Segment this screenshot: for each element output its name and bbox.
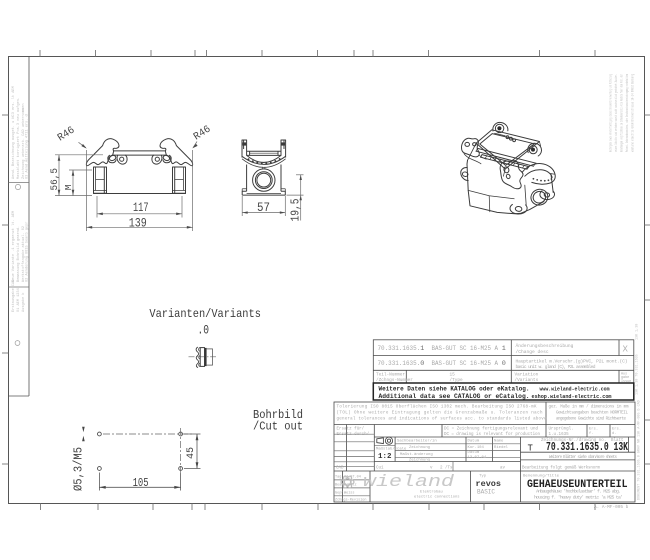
svg-text:Erstausgabe CAD: Erstausgabe CAD	[11, 280, 16, 312]
svg-text:basic unit w. gland (C), P2L a: basic unit w. gland (C), P2L assembled	[516, 364, 596, 370]
svg-text:Typ: Typ	[479, 474, 487, 478]
svg-text:Name: Name	[494, 439, 504, 443]
svg-text:13K 1,30 70.331.1635: 13K 1,30 70.331.1635	[636, 354, 640, 395]
svg-text:Issue: Issue	[621, 380, 631, 384]
svg-text:Weitergabe sowie Vervielfaelti: Weitergabe sowie Vervielfaeltigung diese…	[609, 74, 614, 152]
svg-text:gez. Maße in mm / dimensions i: gez. Maße in mm / dimensions in mm	[549, 405, 629, 410]
svg-text:Ersatz für/: Ersatz für/	[337, 427, 365, 432]
svg-text:.0: .0	[198, 324, 210, 338]
svg-text:/Cut out: /Cut out	[253, 420, 303, 434]
svg-text:Datum: Datum	[468, 439, 480, 443]
svg-text:139: 139	[129, 217, 147, 231]
svg-text:Tolerierung ISO 8015 Oberfläc: Tolerierung ISO 8015 Oberflächen ISO 130…	[337, 405, 537, 410]
svg-text:Massblatt korrigiert Pos.3 n: Massblatt korrigiert Pos.3 neu aufgen.	[16, 97, 21, 179]
svg-text:13K 1,30: 13K 1,30	[636, 324, 640, 340]
svg-text:45: 45	[185, 447, 197, 459]
svg-text:R46: R46	[56, 124, 78, 144]
svg-text:Gewichtsangaben beachten NORMT: Gewichtsangaben beachten NORMTEIL	[556, 411, 628, 416]
svg-text:Hauptartikel m.Verschr.(g)PVC,: Hauptartikel m.Verschr.(g)PVC, P2L mont.…	[516, 359, 628, 365]
svg-text:15: 15	[450, 373, 456, 378]
svg-text:CAD: CAD	[336, 467, 344, 471]
svg-text:Anbaugehäuse 'hochbelastbar' f: Anbaugehäuse 'hochbelastbar' f. M25 abg.	[536, 489, 621, 495]
svg-text:19,5: 19,5	[290, 198, 303, 221]
svg-text:Neue Variante .1 ergaenzt lt: Neue Variante .1 ergaenzt lt. AEM	[11, 211, 16, 282]
svg-text:Teil-Nummer: Teil-Nummer	[376, 373, 405, 378]
svg-text:DOKUMENT 70.331.1635.0 GRAV N: DOKUMENT 70.331.1635.0 GRAV NR 13K A-MF-…	[637, 400, 642, 500]
svg-text:d.: d.	[612, 431, 617, 436]
svg-text:2 /Ts: 2 /Ts	[440, 465, 453, 470]
svg-text:Weiss: Weiss	[344, 491, 355, 496]
svg-text:M: M	[63, 184, 74, 190]
svg-text:Weitere Daten siehe KATALOG od: Weitere Daten siehe KATALOG oder eKatalo…	[379, 386, 530, 393]
svg-text:1: 1	[502, 345, 506, 353]
svg-text:Varianten/Variants: Varianten/Variants	[149, 307, 261, 321]
svg-text:angegebene Gewichte sind Richt: angegebene Gewichte sind Richtwerte	[556, 417, 626, 422]
svg-text:Sachbearbeiter/in: Sachbearbeiter/in	[397, 438, 437, 443]
svg-text:Zeichnung: Zeichnung	[409, 457, 430, 462]
svg-text:Patent- Gebrauchsmusters- oder: Patent- Gebrauchsmusters- oder Geschmack…	[625, 74, 630, 152]
svg-text:70.331.1635.0 13K: 70.331.1635.0 13K	[546, 441, 628, 454]
svg-text:housing f. 'heavy duty' metric: housing f. 'heavy duty' metric 'a M25 ta…	[534, 494, 623, 500]
svg-text:70.331.1635.: 70.331.1635.	[378, 345, 421, 353]
svg-text:Änderungsbeschreibung: Änderungsbeschreibung	[516, 342, 574, 349]
svg-text:Tag: Tag	[335, 476, 341, 480]
svg-text:/Change desc: /Change desc	[516, 349, 549, 355]
svg-text:v: v	[430, 466, 433, 470]
svg-text:general tolerances and indicat: general tolerances and indications of su…	[337, 417, 547, 422]
svg-text:0: 0	[502, 360, 506, 368]
svg-text:seines Inhalts sind verboten s: seines Inhalts sind verboten soweit nich…	[614, 74, 619, 152]
svg-text:Elektrobau: Elektrobau	[420, 490, 443, 495]
svg-text:T: T	[528, 444, 534, 454]
svg-text:Additional data see CATALOG or: Additional data see CATALOG or eCatalog.	[379, 393, 530, 400]
svg-text:Benennung/Title: Benennung/Title	[523, 473, 560, 478]
svg-text:eshop.wieland-electric.com: eshop.wieland-electric.com	[532, 393, 613, 400]
svg-text:57: 57	[257, 201, 270, 215]
svg-text:70.331.1635.: 70.331.1635.	[378, 360, 421, 368]
svg-text:Ers.: Ers.	[589, 427, 598, 432]
svg-text:BAS-GUT SC 16-M25 A: BAS-GUT SC 16-M25 A	[425, 360, 502, 368]
svg-text:13.07.04: 13.07.04	[468, 456, 487, 460]
svg-text:DC = drawing is relevant for p: DC = drawing is relevant for production	[444, 432, 540, 437]
svg-text:f.: f.	[589, 431, 594, 436]
svg-text:/Type: /Type	[450, 378, 464, 383]
svg-text:R46: R46	[192, 123, 214, 143]
svg-text:/Variants: /Variants	[515, 378, 539, 383]
svg-text:01 AEM 1234: 01 AEM 1234	[17, 288, 21, 312]
svg-text:A. A-MF-005 b: A. A-MF-005 b	[594, 505, 629, 510]
svg-text:Aend. Bezeichnung ausget. u: Aend. Bezeichnung ausget. u NC3 ers. lt …	[11, 86, 16, 179]
svg-text:Ø5,3/M5: Ø5,3/M5	[72, 447, 86, 491]
svg-text:X: X	[623, 345, 629, 355]
svg-text:electric connections: electric connections	[414, 495, 460, 500]
svg-text:Ausgabe b: Ausgabe b	[21, 293, 26, 312]
svg-text:BAS-GUT SC 16-M25 A: BAS-GUT SC 16-M25 A	[425, 345, 502, 353]
svg-text:DC = Zeichnung fertigungsrelev: DC = Zeichnung fertigungsrelevant und	[444, 427, 538, 432]
svg-text:Zchngs-Revision: Zchngs-Revision	[335, 498, 367, 503]
svg-text:Weitere Blätter siehe oben/mor: Weitere Blätter siehe oben/more sheets	[549, 455, 617, 460]
svg-text:117: 117	[133, 201, 149, 215]
svg-text:03 Aend.mitteilung 4711 ers: 03 Aend.mitteilung 4711 ers. d	[25, 114, 30, 179]
svg-text:Maßst.änderung: Maßst.änderung	[400, 452, 433, 457]
svg-text:Cu1: Cu1	[376, 466, 384, 470]
svg-text:1.u.1635: 1.u.1635	[549, 433, 570, 437]
svg-text:wieland: wieland	[363, 473, 455, 492]
svg-text:1:2: 1:2	[378, 453, 392, 461]
svg-text:/Zchngs-Nummer: /Zchngs-Nummer	[376, 378, 413, 383]
svg-text:handlungen verpflichten zu Sch: handlungen verpflichten zu Schadenersatz…	[620, 74, 625, 152]
svg-text:Kor.104: Kor.104	[468, 446, 485, 450]
svg-text:Ursprüngl.: Ursprüngl.	[549, 427, 574, 432]
svg-text:Riedel: Riedel	[494, 445, 509, 450]
svg-text:Zeichnung: Zeichnung	[409, 445, 430, 450]
svg-text:wieland electric GmbH Brenners: wieland electric GmbH Brennerstrasse 10-…	[631, 74, 636, 152]
svg-text:(TOL) Ohne weitere Eintragung: (TOL) Ohne weitere Eintragung gelten die…	[337, 411, 543, 416]
svg-text:56,5: 56,5	[49, 168, 61, 191]
svg-text:02 Aenderung 0815 bearb gep: 02 Aenderung 0815 bearb gepr	[25, 222, 30, 282]
svg-text:Bearbeitung folgt gemäß Werksn: Bearbeitung folgt gemäß Werksnorm	[522, 465, 600, 470]
svg-text:www.wieland-electric.com: www.wieland-electric.com	[540, 385, 611, 392]
svg-text:Variation: Variation	[515, 373, 539, 378]
svg-text:av: av	[500, 466, 506, 470]
svg-text:105: 105	[133, 476, 149, 490]
svg-text:Datum: Datum	[468, 451, 480, 455]
svg-text:Bemassung Bohrbild geaend.: Bemassung Bohrbild geaend.	[16, 226, 21, 282]
svg-text:Ersatz durch/: Ersatz durch/	[337, 432, 370, 437]
svg-text:BASIC: BASIC	[477, 488, 495, 495]
svg-text:Maßstab/scale: Maßstab/scale	[376, 446, 407, 451]
svg-text:Ers.: Ers.	[612, 427, 621, 432]
